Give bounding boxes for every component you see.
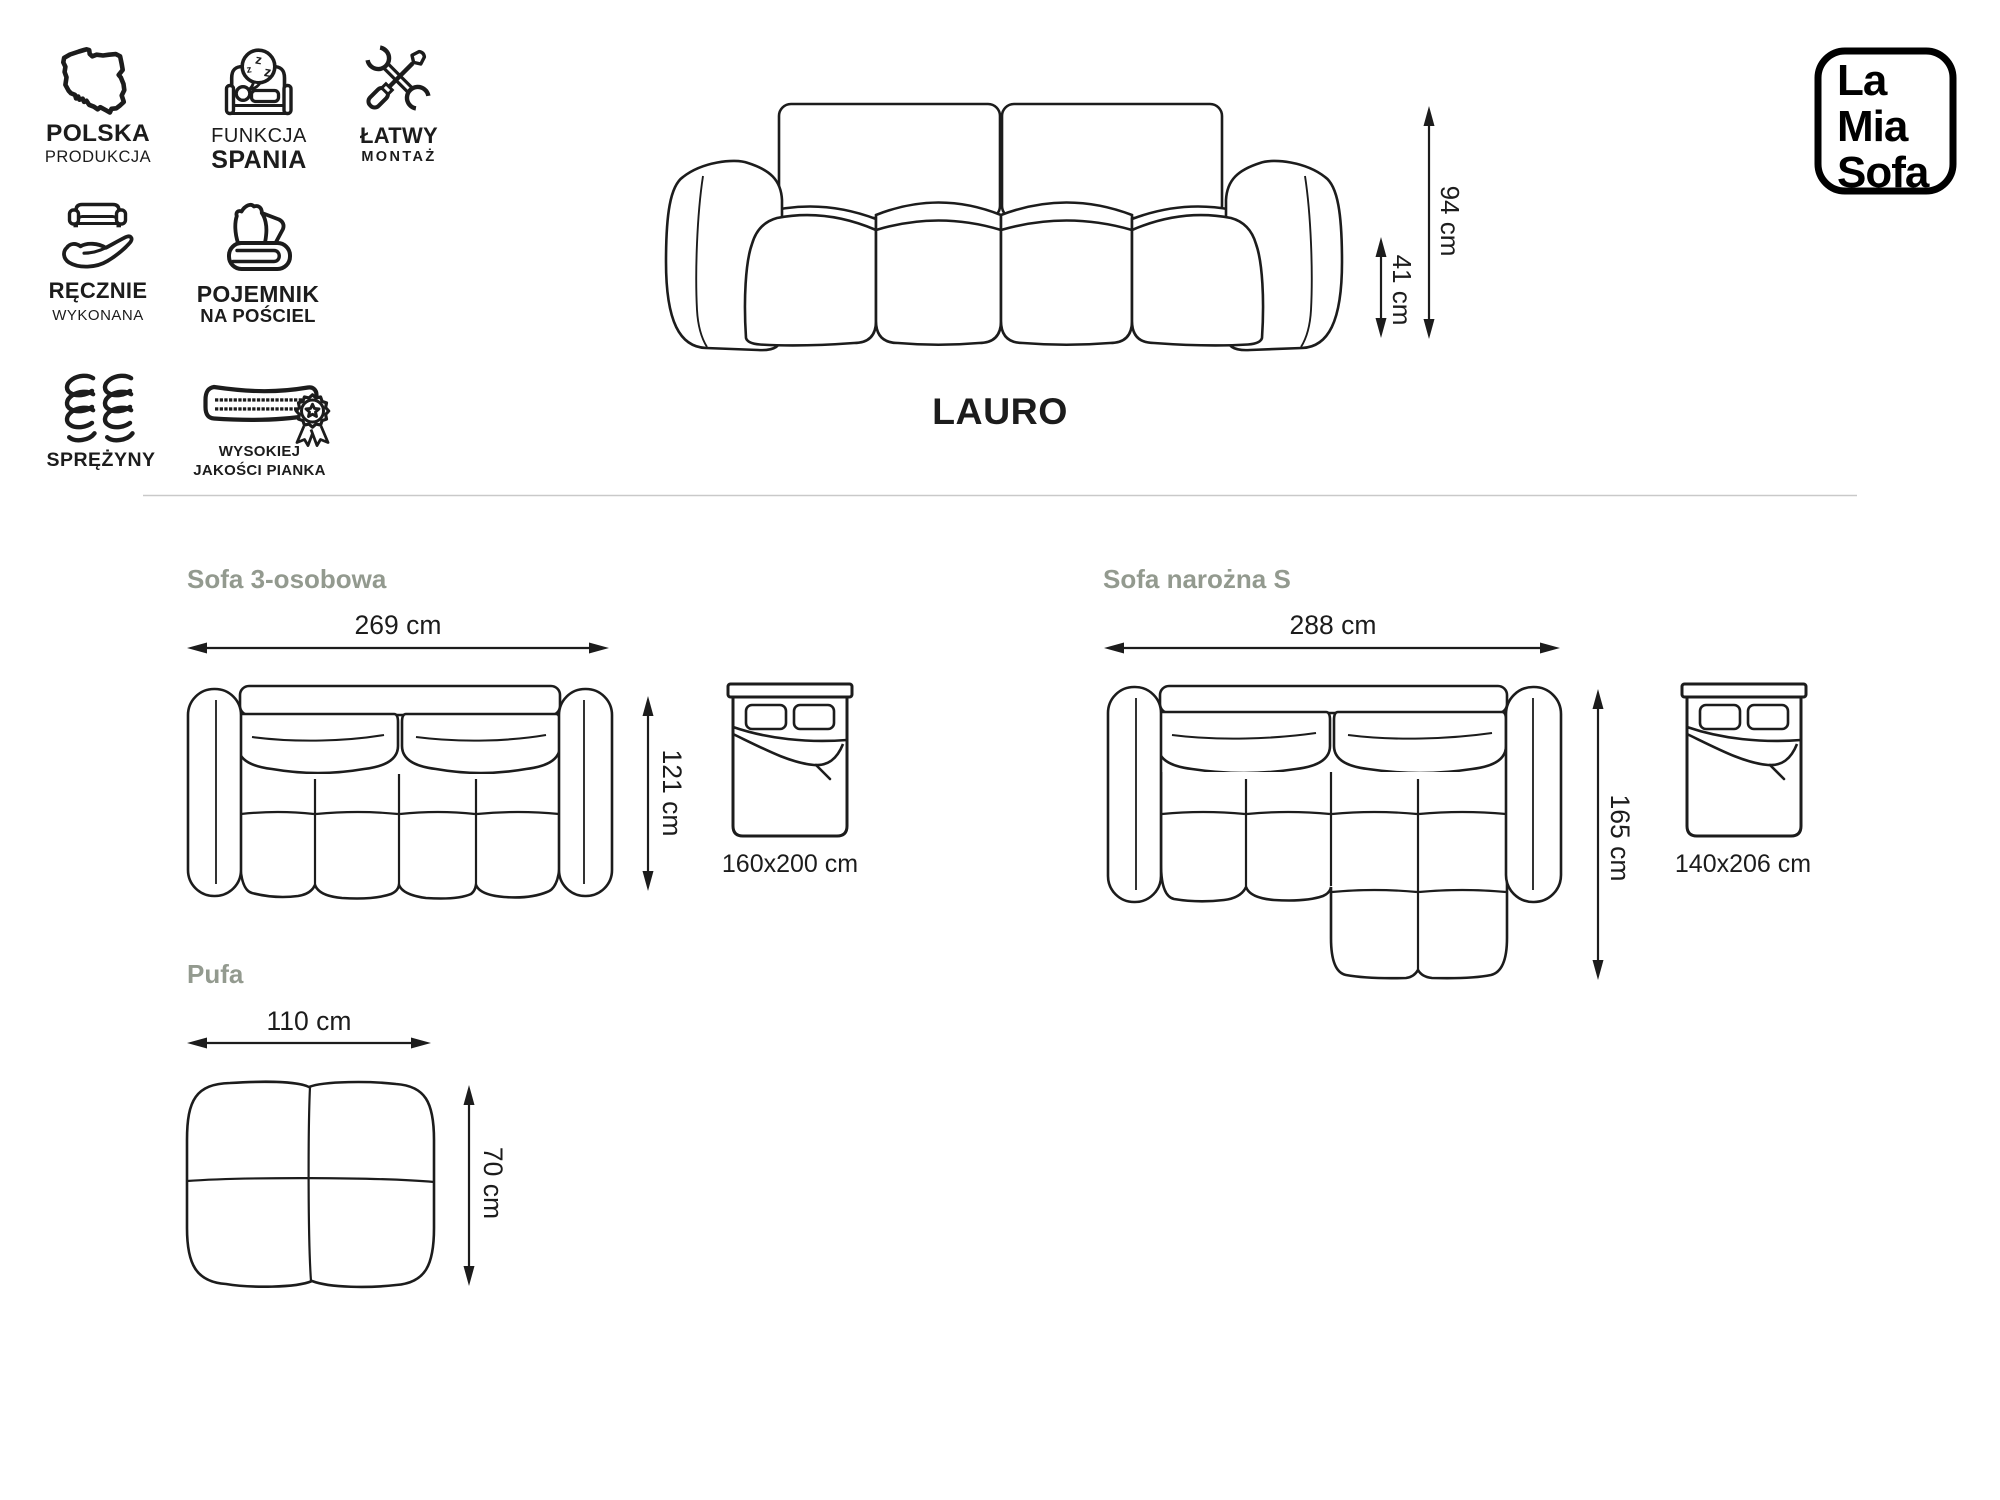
svg-text:LAURO: LAURO [932, 390, 1068, 432]
svg-text:Sofa narożna S: Sofa narożna S [1103, 564, 1291, 594]
svg-text:POLSKA: POLSKA [46, 120, 150, 147]
svg-text:FUNKCJA: FUNKCJA [211, 125, 307, 147]
svg-text:110 cm: 110 cm [267, 1006, 352, 1036]
svg-text:94 cm: 94 cm [1435, 186, 1465, 257]
svg-text:160x200 cm: 160x200 cm [722, 850, 858, 878]
svg-text:POJEMNIK: POJEMNIK [197, 281, 320, 307]
svg-text:WYKONANA: WYKONANA [52, 307, 144, 324]
svg-text:70 cm: 70 cm [478, 1147, 508, 1219]
svg-text:ŁATWY: ŁATWY [360, 123, 438, 148]
svg-text:NA POŚCIEL: NA POŚCIEL [200, 305, 315, 326]
svg-text:WYSOKIEJ: WYSOKIEJ [219, 443, 301, 460]
svg-text:Sofa: Sofa [1837, 148, 1930, 197]
svg-text:Sofa 3-osobowa: Sofa 3-osobowa [187, 564, 387, 594]
svg-text:165 cm: 165 cm [1605, 795, 1635, 882]
svg-text:121 cm: 121 cm [657, 750, 687, 837]
svg-text:RĘCZNIE: RĘCZNIE [49, 278, 148, 303]
svg-text:41 cm: 41 cm [1387, 255, 1417, 326]
svg-text:140x206 cm: 140x206 cm [1675, 850, 1811, 878]
svg-text:Mia: Mia [1837, 102, 1909, 151]
svg-text:PRODUKCJA: PRODUKCJA [45, 148, 151, 166]
svg-text:SPANIA: SPANIA [211, 146, 307, 174]
svg-text:269 cm: 269 cm [355, 610, 442, 640]
svg-text:La: La [1837, 56, 1888, 105]
svg-text:JAKOŚCI PIANKA: JAKOŚCI PIANKA [193, 461, 326, 479]
svg-text:SPRĘŻYNY: SPRĘŻYNY [46, 448, 155, 471]
svg-text:MONTAŻ: MONTAŻ [361, 148, 436, 165]
svg-text:288 cm: 288 cm [1290, 610, 1377, 640]
svg-text:Pufa: Pufa [187, 959, 244, 989]
